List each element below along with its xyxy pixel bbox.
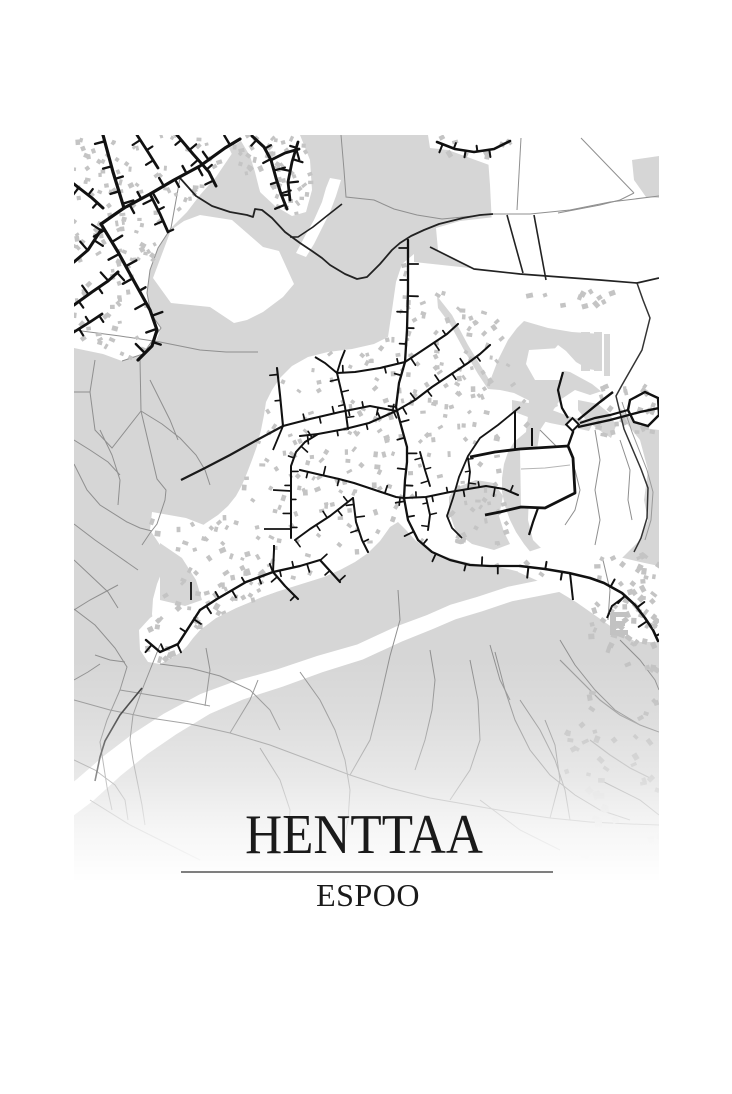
svg-text:HENTTAA: HENTTAA — [245, 803, 483, 866]
svg-text:ESPOO: ESPOO — [316, 877, 420, 913]
